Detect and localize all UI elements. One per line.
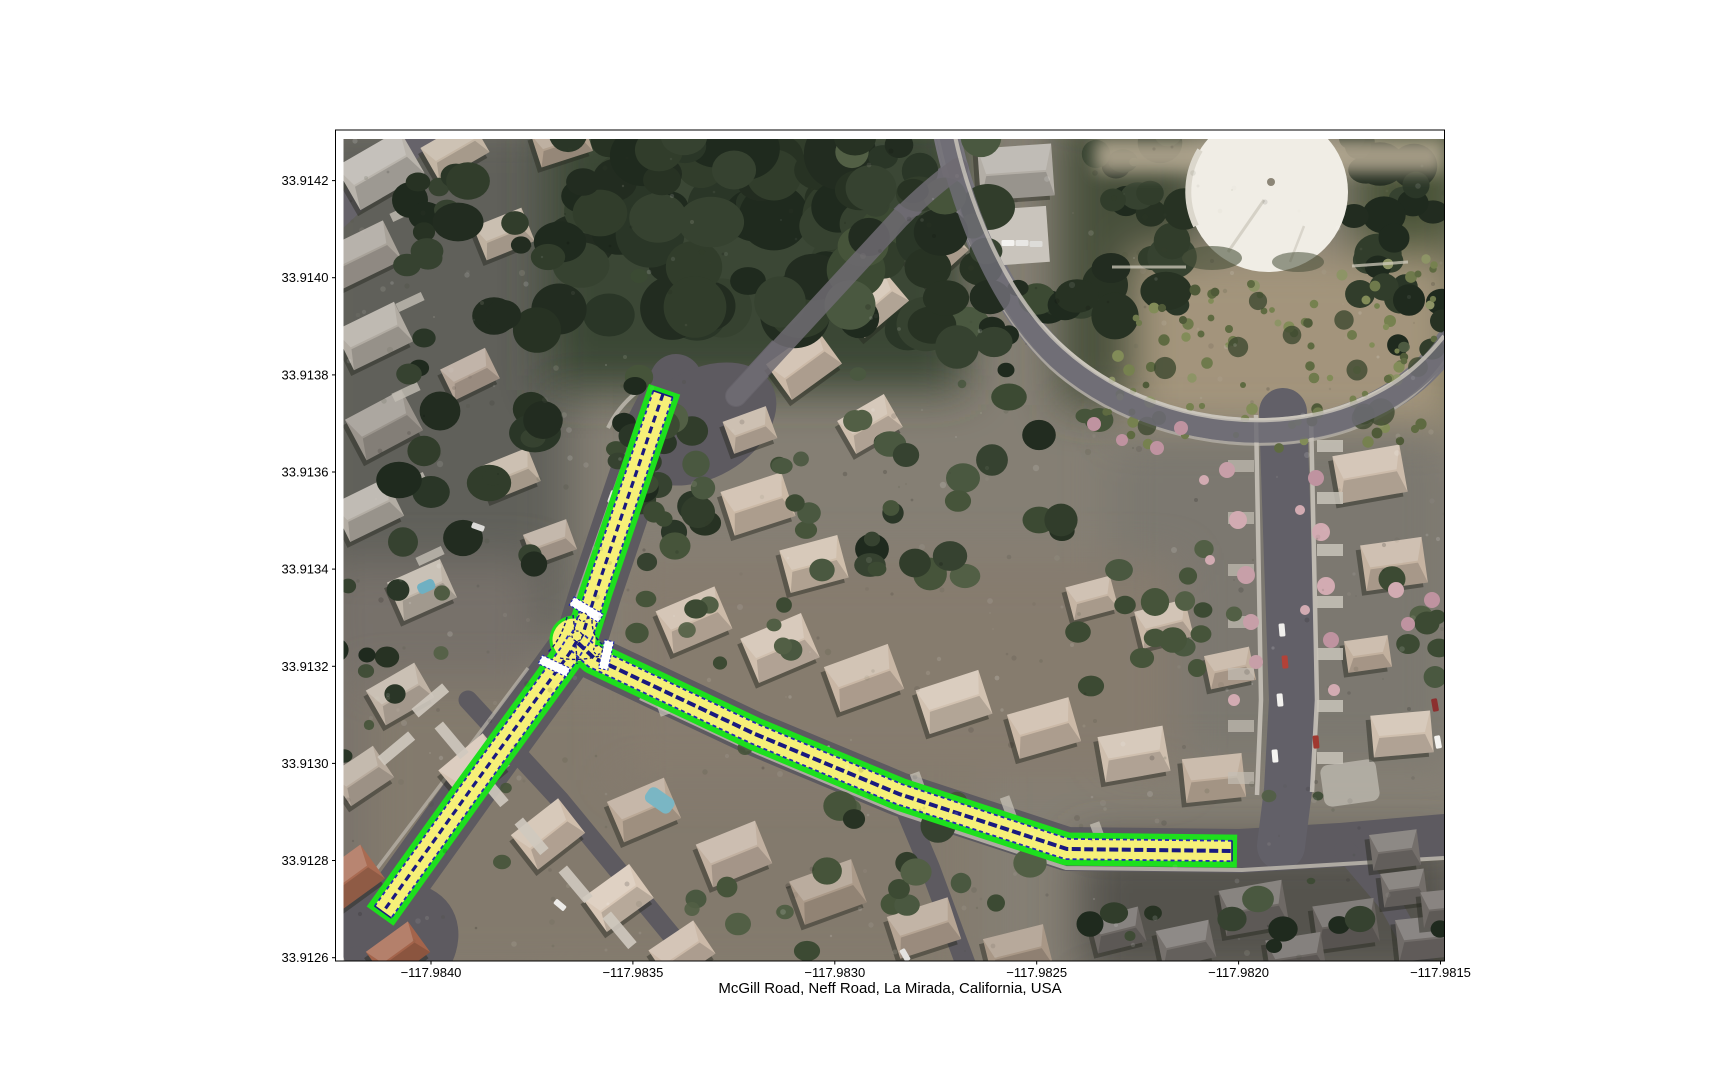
svg-text:33.9130: 33.9130	[282, 756, 329, 771]
svg-text:33.9142: 33.9142	[282, 173, 329, 188]
svg-text:33.9140: 33.9140	[282, 270, 329, 285]
svg-text:33.9132: 33.9132	[282, 659, 329, 674]
svg-text:33.9128: 33.9128	[282, 853, 329, 868]
svg-text:−117.9825: −117.9825	[1006, 965, 1067, 980]
svg-text:McGill Road, Neff Road, La Mir: McGill Road, Neff Road, La Mirada, Calif…	[718, 980, 1061, 997]
svg-text:−117.9840: −117.9840	[401, 965, 462, 980]
svg-text:−117.9830: −117.9830	[804, 965, 865, 980]
svg-text:33.9138: 33.9138	[282, 367, 329, 382]
svg-text:33.9136: 33.9136	[282, 465, 329, 480]
svg-text:33.9134: 33.9134	[282, 562, 329, 577]
svg-text:33.9126: 33.9126	[282, 950, 329, 965]
svg-text:−117.9815: −117.9815	[1410, 965, 1471, 980]
svg-text:−117.9835: −117.9835	[602, 965, 663, 980]
svg-text:−117.9820: −117.9820	[1208, 965, 1269, 980]
